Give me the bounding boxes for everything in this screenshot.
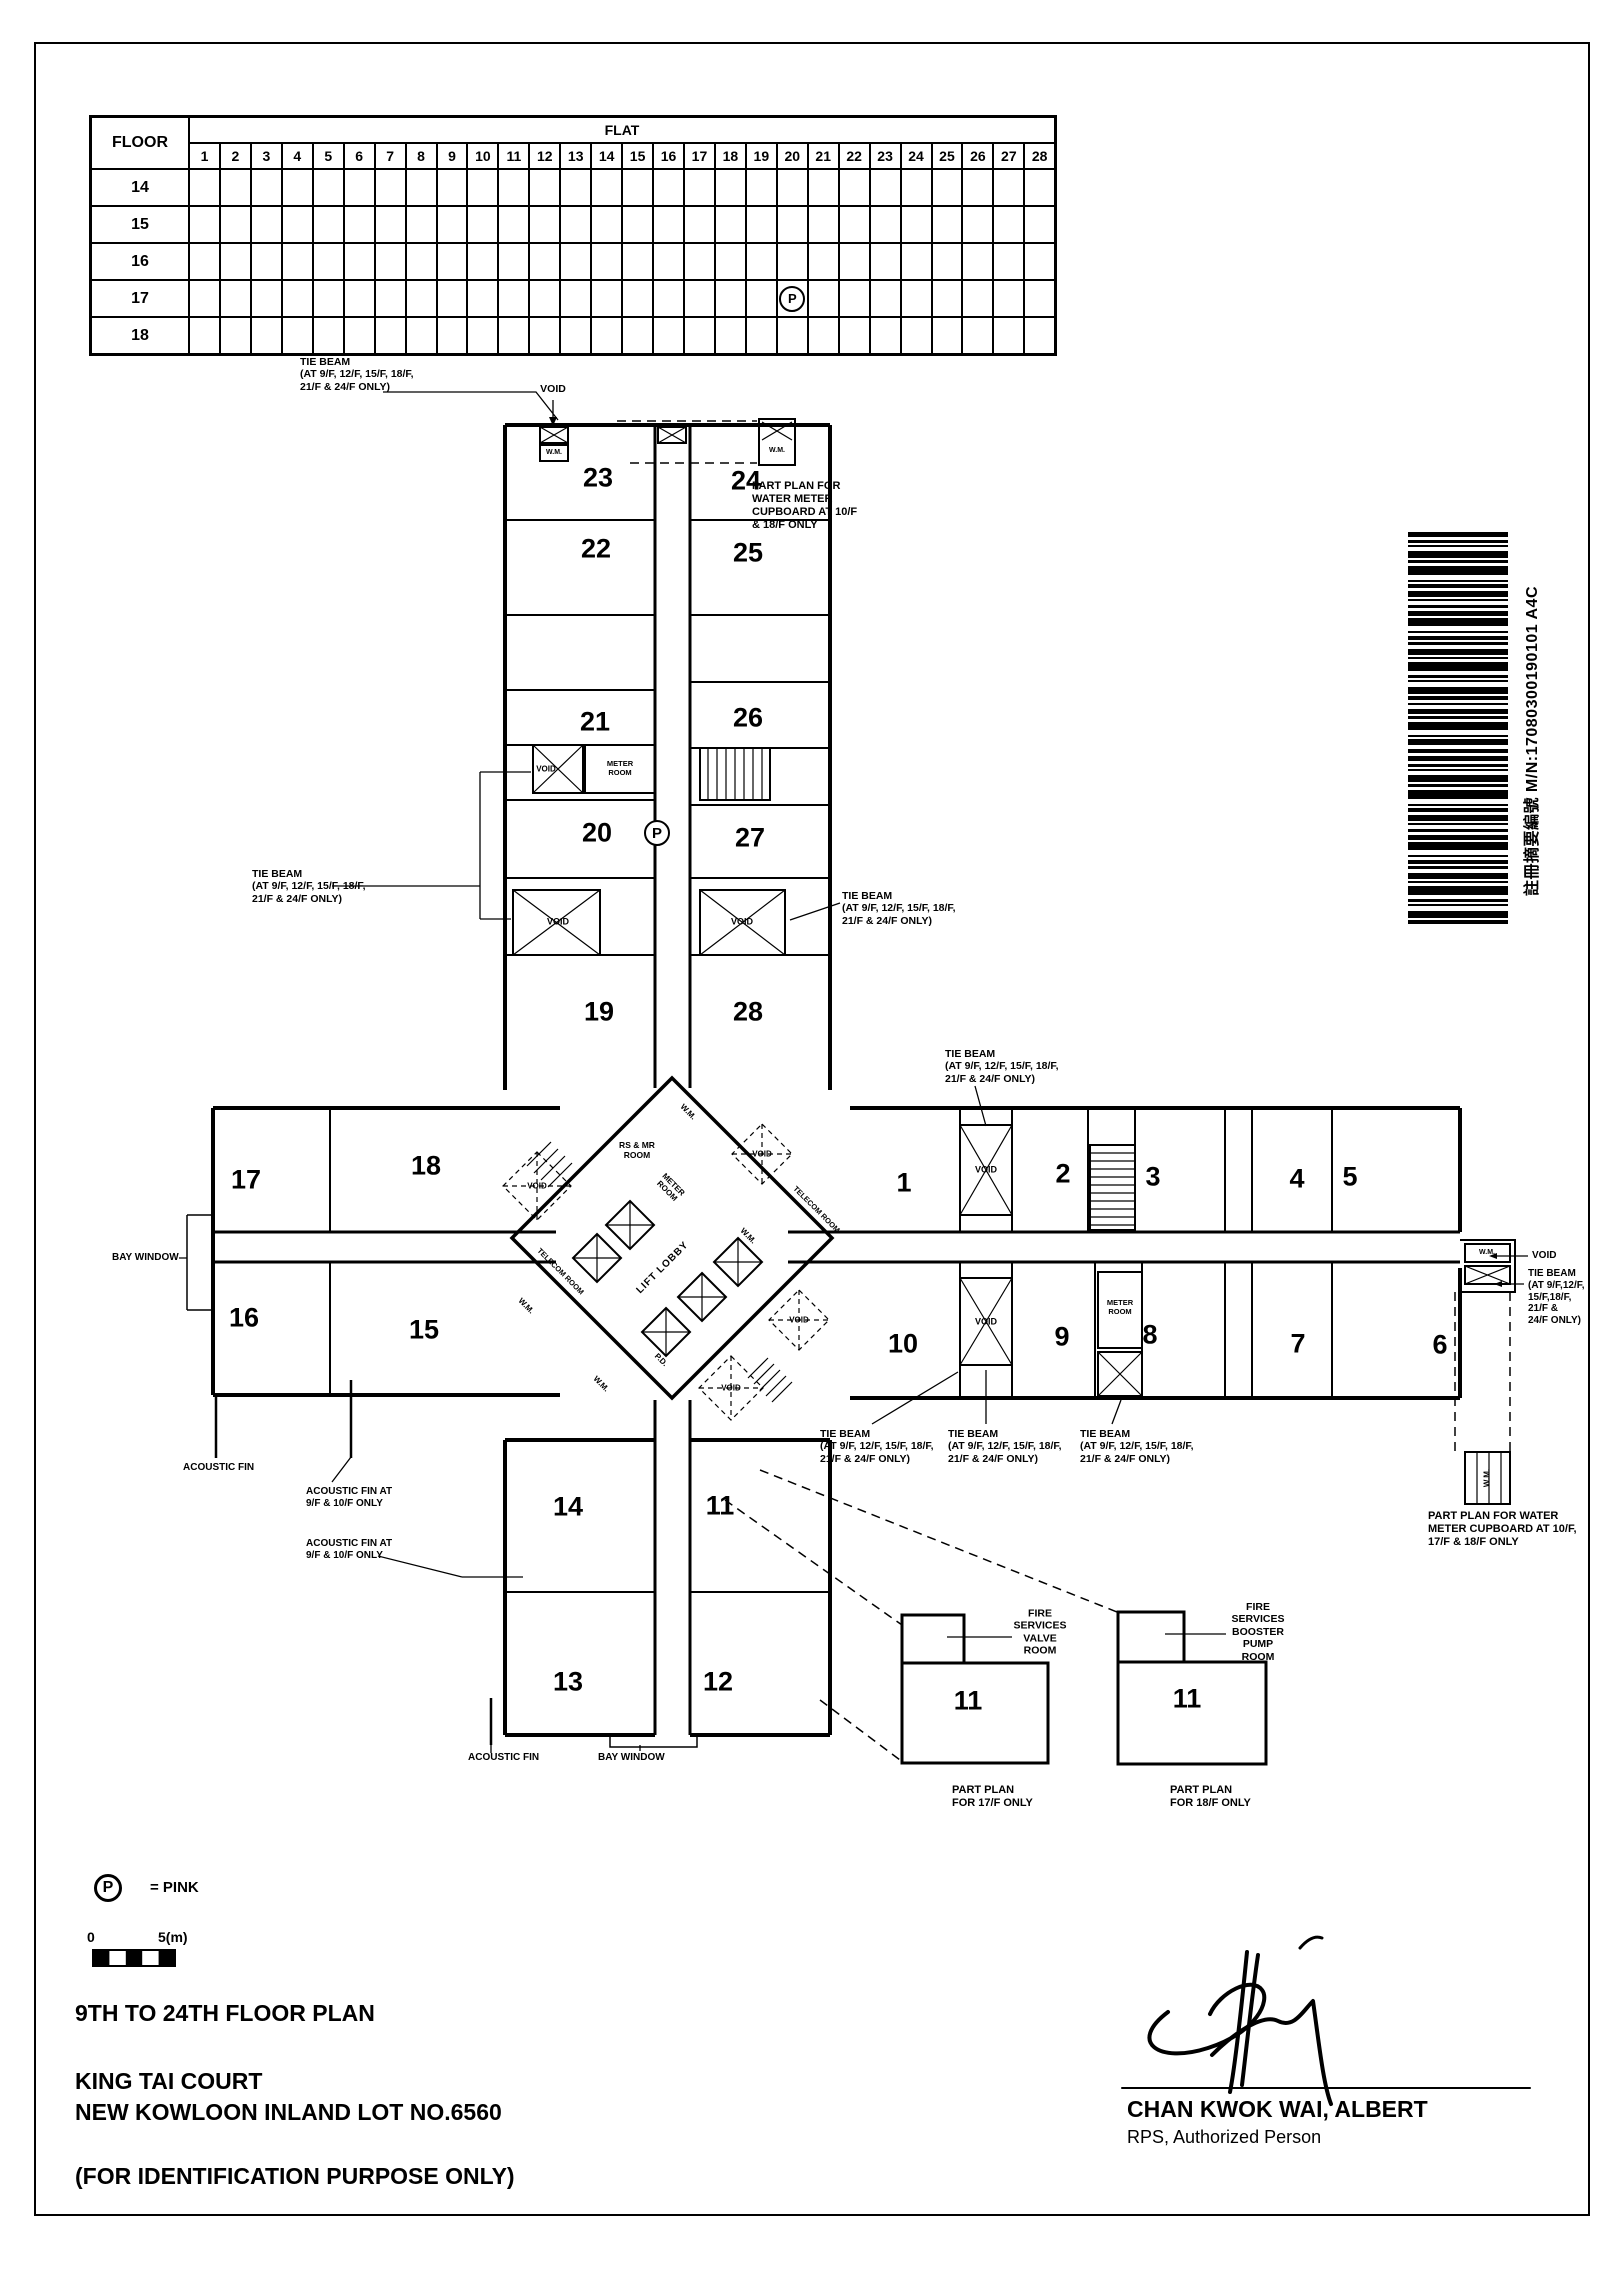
table-cell-floor16-flat21 (808, 243, 839, 280)
table-cell-floor18-flat21 (808, 317, 839, 355)
table-cell-floor17-flat4 (282, 280, 313, 317)
table-cell-floor14-flat8 (406, 169, 437, 206)
annotation-void: VOID (547, 917, 569, 928)
table-flat-col-16: 16 (653, 143, 684, 169)
flat-4-label: 4 (1289, 1164, 1304, 1195)
table-pink-marker: P (779, 286, 805, 312)
annotation-part_plan_18f: PART PLAN FOR 18/F ONLY (1170, 1784, 1251, 1810)
table-cell-floor14-flat25 (932, 169, 963, 206)
table-cell-floor18-flat10 (467, 317, 498, 355)
flat-26-label: 26 (733, 703, 763, 734)
table-cell-floor17-flat19 (746, 280, 777, 317)
flat-10-label: 10 (888, 1329, 918, 1360)
table-cell-floor14-flat19 (746, 169, 777, 206)
flat-18-label: 18 (411, 1151, 441, 1182)
table-cell-floor15-flat6 (344, 206, 375, 243)
flat-11-label: 11 (706, 1491, 735, 1522)
table-flat-col-14: 14 (591, 143, 622, 169)
annotation-fire_services_booster: FIRE SERVICES BOOSTER PUMP ROOM (1232, 1601, 1285, 1663)
table-cell-floor14-flat22 (839, 169, 870, 206)
table-cell-floor18-flat12 (529, 317, 560, 355)
annotation-bay_window: BAY WINDOW (598, 1752, 665, 1764)
legend-pink-meaning: = PINK (150, 1879, 199, 1896)
table-cell-floor14-flat12 (529, 169, 560, 206)
barcode (1408, 532, 1508, 924)
table-cell-floor17-flat20: P (777, 280, 808, 317)
flat-7-label: 7 (1290, 1329, 1305, 1360)
pink-marker-flat-20: P (644, 820, 670, 846)
table-cell-floor15-flat14 (591, 206, 622, 243)
annotation-void: VOID (540, 383, 566, 395)
annotation-acoustic_fin_9_10: ACOUSTIC FIN AT 9/F & 10/F ONLY (306, 1486, 392, 1510)
table-cell-floor17-flat23 (870, 280, 901, 317)
table-flat-col-24: 24 (901, 143, 932, 169)
table-floor-row-14: 14 (91, 169, 190, 206)
annotation-fire_services_valve: FIRE SERVICES VALVE ROOM (1014, 1607, 1067, 1657)
annotation-tie_beam: TIE BEAM (AT 9/F, 12/F, 15/F, 18/F, 21/F… (948, 1428, 1062, 1465)
annotation-tie_beam: TIE BEAM (AT 9/F, 12/F, 15/F, 18/F, 21/F… (945, 1048, 1059, 1085)
table-cell-floor15-flat15 (622, 206, 653, 243)
table-cell-floor15-flat27 (993, 206, 1024, 243)
table-flat-col-1: 1 (189, 143, 220, 169)
table-cell-floor16-flat14 (591, 243, 622, 280)
table-cell-floor14-flat10 (467, 169, 498, 206)
table-cell-floor14-flat21 (808, 169, 839, 206)
table-cell-floor16-flat15 (622, 243, 653, 280)
table-cell-floor14-flat23 (870, 169, 901, 206)
table-cell-floor15-flat22 (839, 206, 870, 243)
corridor-walls (213, 425, 1460, 1735)
table-cell-floor15-flat4 (282, 206, 313, 243)
table-cell-floor16-flat12 (529, 243, 560, 280)
table-cell-floor16-flat20 (777, 243, 808, 280)
purpose-note: (FOR IDENTIFICATION PURPOSE ONLY) (75, 2163, 515, 2190)
annotation-wm: W.M. (1479, 1249, 1495, 1257)
table-flat-col-21: 21 (808, 143, 839, 169)
flat-20-label: 20 (582, 818, 612, 849)
table-cell-floor14-flat4 (282, 169, 313, 206)
table-flat-col-19: 19 (746, 143, 777, 169)
table-cell-floor14-flat16 (653, 169, 684, 206)
table-cell-floor14-flat5 (313, 169, 344, 206)
table-cell-floor18-flat17 (684, 317, 715, 355)
annotation-tie_beam: TIE BEAM (AT 9/F, 12/F, 15/F, 18/F, 21/F… (820, 1428, 934, 1465)
table-cell-floor14-flat7 (375, 169, 406, 206)
flat-16-label: 16 (229, 1303, 259, 1334)
table-cell-floor18-flat8 (406, 317, 437, 355)
table-cell-floor14-flat14 (591, 169, 622, 206)
flat-pp17_11-label: 11 (954, 1686, 983, 1717)
table-cell-floor17-flat10 (467, 280, 498, 317)
flat-6-label: 6 (1432, 1330, 1447, 1361)
annotation-rs_mr_room: RS & MR ROOM (619, 1140, 655, 1160)
table-cell-floor16-flat22 (839, 243, 870, 280)
table-cell-floor18-flat23 (870, 317, 901, 355)
table-cell-floor17-flat14 (591, 280, 622, 317)
table-cell-floor18-flat16 (653, 317, 684, 355)
table-cell-floor17-flat25 (932, 280, 963, 317)
table-cell-floor14-flat28 (1024, 169, 1055, 206)
table-cell-floor18-flat28 (1024, 317, 1055, 355)
table-cell-floor16-flat2 (220, 243, 251, 280)
table-cell-floor17-flat13 (560, 280, 591, 317)
annotation-meter_room: METER ROOM (607, 760, 633, 778)
table-cell-floor15-flat5 (313, 206, 344, 243)
table-cell-floor15-flat13 (560, 206, 591, 243)
table-cell-floor17-flat17 (684, 280, 715, 317)
table-flat-col-26: 26 (962, 143, 993, 169)
lift-shafts (573, 1201, 762, 1356)
table-cell-floor18-flat2 (220, 317, 251, 355)
table-cell-floor18-flat7 (375, 317, 406, 355)
table-cell-floor15-flat11 (498, 206, 529, 243)
table-flat-col-6: 6 (344, 143, 375, 169)
table-cell-floor14-flat9 (437, 169, 468, 206)
flat-27-label: 27 (735, 823, 765, 854)
table-cell-floor17-flat27 (993, 280, 1024, 317)
table-cell-floor18-flat9 (437, 317, 468, 355)
table-cell-floor15-flat1 (189, 206, 220, 243)
table-cell-floor17-flat28 (1024, 280, 1055, 317)
table-cell-floor18-flat19 (746, 317, 777, 355)
table-flat-col-20: 20 (777, 143, 808, 169)
annotation-void: VOID (731, 917, 753, 928)
table-cell-floor15-flat10 (467, 206, 498, 243)
annotation-part_plan_water_meter_right: PART PLAN FOR WATER METER CUPBOARD AT 10… (1428, 1510, 1577, 1549)
acoustic-fins (216, 1380, 491, 1745)
table-cell-floor16-flat17 (684, 243, 715, 280)
annotation-tie_beam: TIE BEAM (AT 9/F, 12/F, 15/F, 18/F, 21/F… (1080, 1428, 1194, 1465)
table-cell-floor17-flat22 (839, 280, 870, 317)
table-cell-floor16-flat19 (746, 243, 777, 280)
estate-name: KING TAI COURT (75, 2068, 262, 2095)
table-flat-col-17: 17 (684, 143, 715, 169)
flat-13-label: 13 (553, 1667, 583, 1698)
table-cell-floor15-flat28 (1024, 206, 1055, 243)
table-cell-floor18-flat24 (901, 317, 932, 355)
table-cell-floor14-flat17 (684, 169, 715, 206)
table-flat-col-4: 4 (282, 143, 313, 169)
flat-14-label: 14 (553, 1492, 583, 1523)
table-cell-floor17-flat16 (653, 280, 684, 317)
table-cell-floor15-flat21 (808, 206, 839, 243)
table-cell-floor18-flat18 (715, 317, 746, 355)
table-cell-floor18-flat3 (251, 317, 282, 355)
annotation-tie_beam: TIE BEAM (AT 9/F, 12/F, 15/F, 18/F, 21/F… (300, 356, 414, 393)
annotation-meter_room: METER ROOM (1107, 1299, 1133, 1317)
table-flat-col-7: 7 (375, 143, 406, 169)
bay-window-brackets (187, 1215, 697, 1747)
authorized-person-role: RPS, Authorized Person (1127, 2127, 1321, 2148)
table-cell-floor15-flat19 (746, 206, 777, 243)
table-cell-floor17-flat15 (622, 280, 653, 317)
flat-28-label: 28 (733, 997, 763, 1028)
scale-start-label: 0 (87, 1929, 95, 1945)
table-cell-floor16-flat7 (375, 243, 406, 280)
table-cell-floor15-flat18 (715, 206, 746, 243)
table-cell-floor14-flat3 (251, 169, 282, 206)
table-cell-floor17-flat26 (962, 280, 993, 317)
table-cell-floor17-flat7 (375, 280, 406, 317)
table-cell-floor16-flat26 (962, 243, 993, 280)
table-cell-floor17-flat12 (529, 280, 560, 317)
table-flat-col-9: 9 (437, 143, 468, 169)
table-cell-floor16-flat5 (313, 243, 344, 280)
annotation-tie_beam: TIE BEAM (AT 9/F, 12/F, 15/F, 18/F, 21/F… (842, 890, 956, 927)
table-cell-floor17-flat3 (251, 280, 282, 317)
table-cell-floor14-flat1 (189, 169, 220, 206)
table-cell-floor16-flat3 (251, 243, 282, 280)
table-cell-floor15-flat24 (901, 206, 932, 243)
flat-floor-table: FLOORFLAT1234567891011121314151617181920… (89, 115, 1057, 356)
table-cell-floor18-flat5 (313, 317, 344, 355)
table-flat-col-5: 5 (313, 143, 344, 169)
floor-plan-sheet: FLOORFLAT1234567891011121314151617181920… (0, 0, 1620, 2295)
table-cell-floor15-flat8 (406, 206, 437, 243)
table-cell-floor18-flat22 (839, 317, 870, 355)
annotation-wm: W.M. (1482, 1469, 1491, 1487)
table-flat-col-23: 23 (870, 143, 901, 169)
table-cell-floor17-flat6 (344, 280, 375, 317)
table-cell-floor16-flat18 (715, 243, 746, 280)
table-cell-floor14-flat27 (993, 169, 1024, 206)
table-cell-floor17-flat11 (498, 280, 529, 317)
table-cell-floor18-flat1 (189, 317, 220, 355)
annotation-acoustic_fin: ACOUSTIC FIN (468, 1752, 539, 1764)
table-cell-floor14-flat24 (901, 169, 932, 206)
flat-23-label: 23 (583, 463, 613, 494)
annotation-void: VOID (536, 764, 556, 773)
table-cell-floor18-flat13 (560, 317, 591, 355)
table-flat-header: FLAT (189, 117, 1056, 144)
flat-12-label: 12 (703, 1667, 733, 1698)
table-cell-floor16-flat27 (993, 243, 1024, 280)
table-cell-floor15-flat17 (684, 206, 715, 243)
table-cell-floor14-flat13 (560, 169, 591, 206)
table-flat-col-18: 18 (715, 143, 746, 169)
signature-stroke (1122, 1937, 1530, 2104)
plan-title: 9TH TO 24TH FLOOR PLAN (75, 2000, 375, 2027)
annotation-void: VOID (527, 1181, 547, 1190)
scale-bar (93, 1950, 175, 1966)
table-flat-col-27: 27 (993, 143, 1024, 169)
annotation-wm: W.M. (546, 449, 562, 457)
table-flat-col-28: 28 (1024, 143, 1055, 169)
annotation-void: VOID (1532, 1250, 1556, 1262)
annotation-tie_beam_right_edge: TIE BEAM (AT 9/F,12/F, 15/F,18/F, 21/F &… (1528, 1268, 1585, 1327)
table-cell-floor15-flat9 (437, 206, 468, 243)
table-cell-floor17-flat1 (189, 280, 220, 317)
dashed-reference-lines (617, 421, 1510, 1760)
flat-21-label: 21 (580, 707, 610, 738)
table-cell-floor17-flat18 (715, 280, 746, 317)
table-cell-floor15-flat23 (870, 206, 901, 243)
table-cell-floor15-flat12 (529, 206, 560, 243)
table-cell-floor16-flat11 (498, 243, 529, 280)
annotation-void: VOID (975, 1317, 997, 1328)
annotation-void: VOID (721, 1383, 741, 1392)
flat-pp18_11-label: 11 (1173, 1684, 1202, 1715)
flat-5-label: 5 (1342, 1162, 1357, 1193)
table-flat-col-10: 10 (467, 143, 498, 169)
table-cell-floor18-flat25 (932, 317, 963, 355)
table-flat-col-12: 12 (529, 143, 560, 169)
table-cell-floor18-flat4 (282, 317, 313, 355)
table-flat-col-3: 3 (251, 143, 282, 169)
table-cell-floor17-flat24 (901, 280, 932, 317)
table-cell-floor17-flat21 (808, 280, 839, 317)
table-cell-floor18-flat15 (622, 317, 653, 355)
table-cell-floor17-flat9 (437, 280, 468, 317)
table-cell-floor17-flat5 (313, 280, 344, 317)
table-floor-row-17: 17 (91, 280, 190, 317)
annotation-void: VOID (752, 1149, 772, 1158)
table-cell-floor18-flat11 (498, 317, 529, 355)
partition-walls (330, 419, 1515, 1592)
table-cell-floor14-flat2 (220, 169, 251, 206)
table-cell-floor15-flat26 (962, 206, 993, 243)
table-cell-floor14-flat6 (344, 169, 375, 206)
flat-1-label: 1 (896, 1168, 911, 1199)
table-cell-floor16-flat10 (467, 243, 498, 280)
annotation-part_plan_water_meter_top: PART PLAN FOR WATER METER CUPBOARD AT 10… (752, 480, 857, 532)
annotation-part_plan_17f: PART PLAN FOR 17/F ONLY (952, 1784, 1033, 1810)
table-cell-floor16-flat16 (653, 243, 684, 280)
flat-22-label: 22 (581, 534, 611, 565)
table-cell-floor14-flat15 (622, 169, 653, 206)
annotation-acoustic_fin: ACOUSTIC FIN (183, 1462, 254, 1474)
table-cell-floor18-flat27 (993, 317, 1024, 355)
lot-number: NEW KOWLOON INLAND LOT NO.6560 (75, 2099, 502, 2126)
flat-8-label: 8 (1142, 1320, 1157, 1351)
table-cell-floor14-flat18 (715, 169, 746, 206)
annotation-wm: W.M. (769, 447, 785, 455)
table-floor-row-16: 16 (91, 243, 190, 280)
annotation-bay_window: BAY WINDOW (112, 1252, 179, 1264)
annotation-void: VOID (975, 1165, 997, 1176)
table-cell-floor15-flat7 (375, 206, 406, 243)
table-cell-floor16-flat1 (189, 243, 220, 280)
table-cell-floor15-flat25 (932, 206, 963, 243)
flat-15-label: 15 (409, 1315, 439, 1346)
table-cell-floor16-flat6 (344, 243, 375, 280)
table-flat-col-8: 8 (406, 143, 437, 169)
flat-17-label: 17 (231, 1165, 261, 1196)
legend-pink-symbol: P (94, 1874, 122, 1902)
table-cell-floor16-flat9 (437, 243, 468, 280)
flat-19-label: 19 (584, 997, 614, 1028)
table-cell-floor16-flat24 (901, 243, 932, 280)
outer-walls (213, 425, 1460, 1735)
table-cell-floor17-flat8 (406, 280, 437, 317)
annotation-void: VOID (789, 1315, 809, 1324)
table-cell-floor18-flat6 (344, 317, 375, 355)
table-cell-floor17-flat2 (220, 280, 251, 317)
annotation-acoustic_fin_9_10: ACOUSTIC FIN AT 9/F & 10/F ONLY (306, 1538, 392, 1562)
table-cell-floor15-flat20 (777, 206, 808, 243)
flat-3-label: 3 (1145, 1162, 1160, 1193)
table-floor-header: FLOOR (91, 117, 190, 170)
table-cell-floor16-flat13 (560, 243, 591, 280)
table-cell-floor14-flat20 (777, 169, 808, 206)
barcode-label: 註冊摘要編號 M/N:17080300190101 A4C (1518, 529, 1542, 953)
table-flat-col-13: 13 (560, 143, 591, 169)
table-cell-floor16-flat25 (932, 243, 963, 280)
table-cell-floor15-flat3 (251, 206, 282, 243)
table-floor-row-18: 18 (91, 317, 190, 355)
table-cell-floor18-flat20 (777, 317, 808, 355)
table-cell-floor16-flat23 (870, 243, 901, 280)
flat-2-label: 2 (1055, 1159, 1070, 1190)
flat-9-label: 9 (1054, 1322, 1069, 1353)
table-flat-col-2: 2 (220, 143, 251, 169)
table-cell-floor18-flat14 (591, 317, 622, 355)
annotation-tie_beam: TIE BEAM (AT 9/F, 12/F, 15/F, 18/F, 21/F… (252, 868, 366, 905)
table-flat-col-11: 11 (498, 143, 529, 169)
table-cell-floor16-flat28 (1024, 243, 1055, 280)
table-cell-floor14-flat11 (498, 169, 529, 206)
table-cell-floor16-flat4 (282, 243, 313, 280)
table-cell-floor15-flat16 (653, 206, 684, 243)
table-flat-col-22: 22 (839, 143, 870, 169)
table-cell-floor15-flat2 (220, 206, 251, 243)
table-flat-col-15: 15 (622, 143, 653, 169)
scale-end-label: 5(m) (158, 1929, 188, 1945)
table-cell-floor16-flat8 (406, 243, 437, 280)
authorized-person-name: CHAN KWOK WAI, ALBERT (1127, 2096, 1428, 2123)
table-cell-floor14-flat26 (962, 169, 993, 206)
table-floor-row-15: 15 (91, 206, 190, 243)
table-flat-col-25: 25 (932, 143, 963, 169)
flat-25-label: 25 (733, 538, 763, 569)
table-cell-floor18-flat26 (962, 317, 993, 355)
